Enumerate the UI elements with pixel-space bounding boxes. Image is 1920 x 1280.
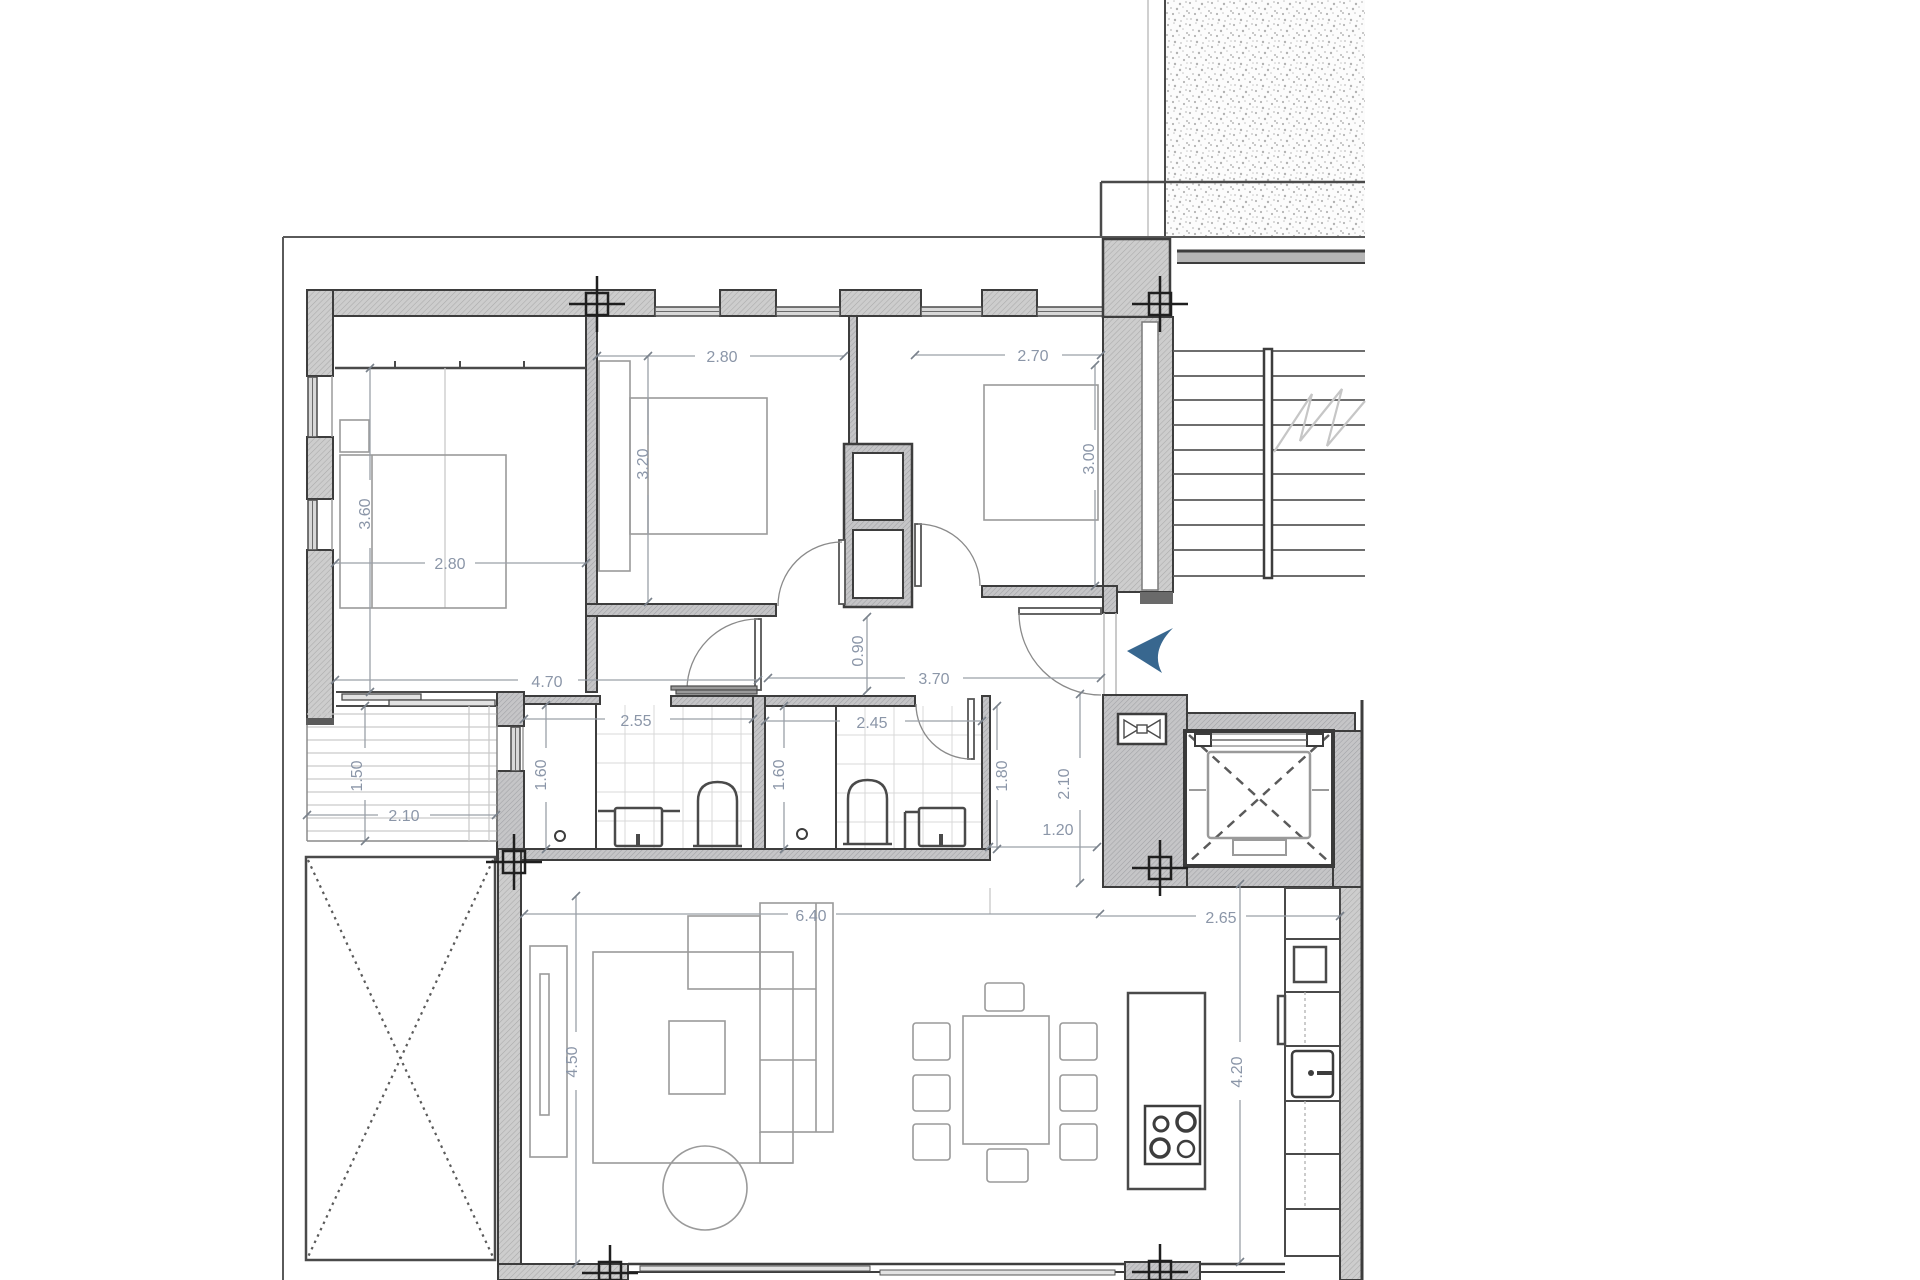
svg-text:2.45: 2.45 <box>856 715 887 732</box>
svg-text:0.90: 0.90 <box>850 635 867 666</box>
svg-text:6.40: 6.40 <box>795 908 826 925</box>
svg-text:1.60: 1.60 <box>771 759 788 790</box>
svg-text:2.80: 2.80 <box>706 349 737 366</box>
svg-text:2.70: 2.70 <box>1017 348 1048 365</box>
svg-text:2.55: 2.55 <box>620 713 651 730</box>
svg-text:1.80: 1.80 <box>994 760 1011 791</box>
svg-text:3.20: 3.20 <box>635 448 652 479</box>
svg-text:2.65: 2.65 <box>1205 910 1236 927</box>
svg-text:1.60: 1.60 <box>533 759 550 790</box>
svg-text:3.60: 3.60 <box>357 498 374 529</box>
svg-text:1.20: 1.20 <box>1042 822 1073 839</box>
svg-text:4.50: 4.50 <box>564 1046 581 1077</box>
svg-text:4.20: 4.20 <box>1229 1056 1246 1087</box>
svg-text:2.10: 2.10 <box>1056 768 1073 799</box>
svg-text:3.70: 3.70 <box>918 671 949 688</box>
svg-text:2.10: 2.10 <box>388 808 419 825</box>
svg-text:1.50: 1.50 <box>349 760 366 791</box>
svg-text:3.00: 3.00 <box>1081 443 1098 474</box>
svg-text:2.80: 2.80 <box>434 556 465 573</box>
svg-text:4.70: 4.70 <box>531 674 562 691</box>
